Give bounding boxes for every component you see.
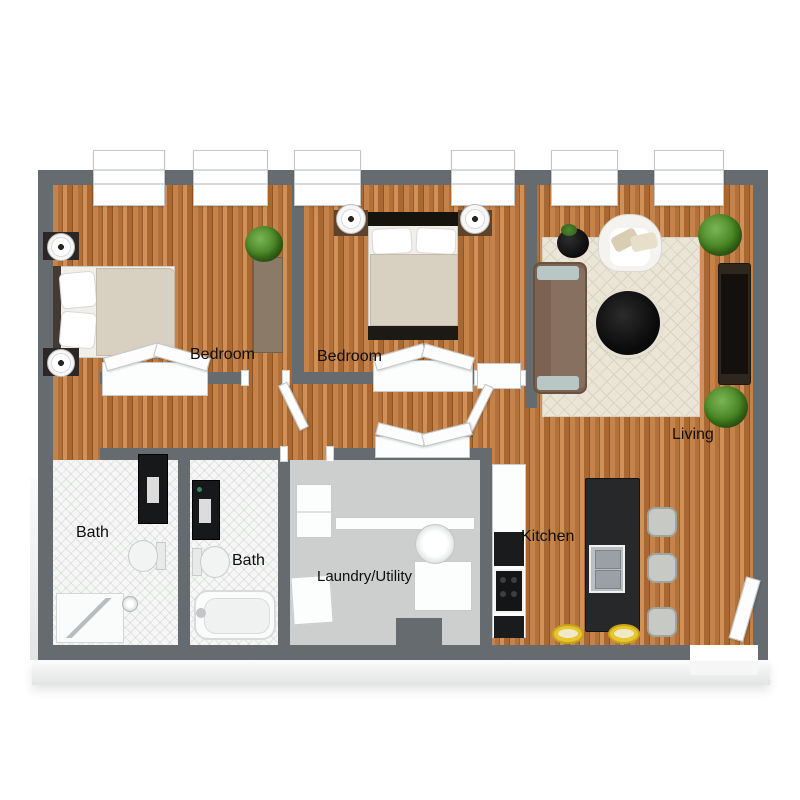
stove bbox=[494, 569, 524, 613]
wall-outer-bottom-right bbox=[758, 645, 768, 660]
kitchen-island bbox=[585, 478, 640, 632]
base-cabinet bbox=[494, 616, 524, 638]
wall-outer-bottom-left bbox=[38, 645, 690, 660]
refrigerator bbox=[494, 532, 524, 566]
sink-basin bbox=[595, 550, 621, 569]
wall-laundry-kitchen bbox=[480, 448, 492, 645]
potted-plant bbox=[698, 214, 742, 256]
room-label-laundry: Laundry/Utility bbox=[317, 568, 412, 585]
window bbox=[654, 150, 724, 206]
room-label-bath-1: Bath bbox=[76, 524, 109, 542]
foundation-slab-left bbox=[30, 478, 38, 660]
shower-glass bbox=[59, 598, 119, 638]
door-jamb bbox=[280, 446, 288, 462]
dining-chair bbox=[647, 507, 677, 537]
bed-duvet bbox=[96, 268, 175, 356]
dining-chair bbox=[647, 553, 677, 583]
door-jamb bbox=[241, 370, 249, 386]
door-jamb bbox=[326, 446, 334, 462]
window bbox=[551, 150, 618, 206]
wall-pier-laundry-door bbox=[396, 618, 442, 645]
potted-plant bbox=[245, 226, 283, 262]
room-label-kitchen: Kitchen bbox=[521, 528, 574, 546]
window bbox=[193, 150, 268, 206]
bathroom-vanity bbox=[138, 454, 168, 524]
sofa-seat bbox=[551, 268, 585, 388]
potted-plant bbox=[704, 386, 748, 428]
stool-top bbox=[558, 629, 578, 638]
bathtub bbox=[194, 590, 276, 640]
room-label-bedroom-1: Bedroom bbox=[190, 346, 255, 364]
vanity-sink bbox=[199, 499, 211, 523]
floor-plan: Bedroom Bedroom Living Bath Bath Laundry… bbox=[30, 148, 770, 708]
table-lamp bbox=[47, 349, 75, 377]
burner bbox=[511, 591, 517, 597]
toilet bbox=[128, 540, 158, 572]
window bbox=[93, 150, 165, 206]
vanity-sink bbox=[147, 477, 159, 503]
toilet bbox=[200, 546, 230, 578]
bed-headboard bbox=[368, 212, 458, 226]
plant-leaves bbox=[561, 224, 577, 236]
walk-in-shower bbox=[56, 593, 124, 643]
pillow bbox=[371, 227, 412, 255]
table-lamp bbox=[47, 233, 75, 261]
kitchen-sink bbox=[589, 545, 625, 593]
wall-hall-baths bbox=[100, 448, 285, 460]
window bbox=[294, 150, 361, 206]
shower-fixture bbox=[122, 596, 138, 612]
bed-duvet bbox=[370, 254, 458, 326]
entry-threshold bbox=[690, 645, 758, 661]
table-lamp bbox=[336, 204, 366, 234]
bar-stool bbox=[608, 624, 640, 644]
entry-step bbox=[690, 661, 758, 675]
washing-machine bbox=[415, 524, 455, 564]
window bbox=[451, 150, 515, 206]
room-label-living: Living bbox=[672, 426, 714, 444]
sofa-cushion bbox=[537, 266, 579, 280]
coffee-table bbox=[596, 291, 660, 355]
wall-bath1-bath2 bbox=[178, 460, 190, 645]
burner bbox=[511, 577, 517, 583]
vanity-accent bbox=[197, 487, 202, 492]
room-label-bedroom-2: Bedroom bbox=[317, 348, 382, 366]
pillow bbox=[58, 310, 97, 349]
stool-top bbox=[614, 629, 634, 638]
tv-screen bbox=[721, 274, 748, 374]
pillow bbox=[415, 227, 456, 255]
sofa-cushion bbox=[537, 376, 579, 390]
room-label-bath-2: Bath bbox=[232, 552, 265, 570]
table-lamp bbox=[460, 204, 490, 234]
foundation-slab bbox=[32, 660, 770, 685]
laundry-table bbox=[414, 561, 472, 611]
bathtub-basin bbox=[204, 598, 270, 634]
bathroom-vanity bbox=[192, 480, 220, 540]
tub-faucet bbox=[196, 608, 206, 618]
sink-basin bbox=[595, 570, 621, 589]
dresser bbox=[253, 257, 283, 353]
laundry-shelf bbox=[296, 484, 332, 538]
shelf-line bbox=[297, 511, 331, 513]
black-planter bbox=[557, 228, 589, 258]
bed-footboard bbox=[368, 326, 458, 340]
laundry-counter bbox=[335, 517, 475, 530]
burner bbox=[500, 577, 506, 583]
burner bbox=[500, 591, 506, 597]
pillow bbox=[58, 270, 97, 309]
wall-bath2-laundry bbox=[278, 460, 290, 645]
floor-plan-canvas: Bedroom Bedroom Living Bath Bath Laundry… bbox=[0, 0, 800, 800]
wall-bedroom1-bedroom2 bbox=[292, 185, 304, 384]
dining-chair bbox=[647, 607, 677, 637]
bar-stool bbox=[552, 624, 584, 644]
